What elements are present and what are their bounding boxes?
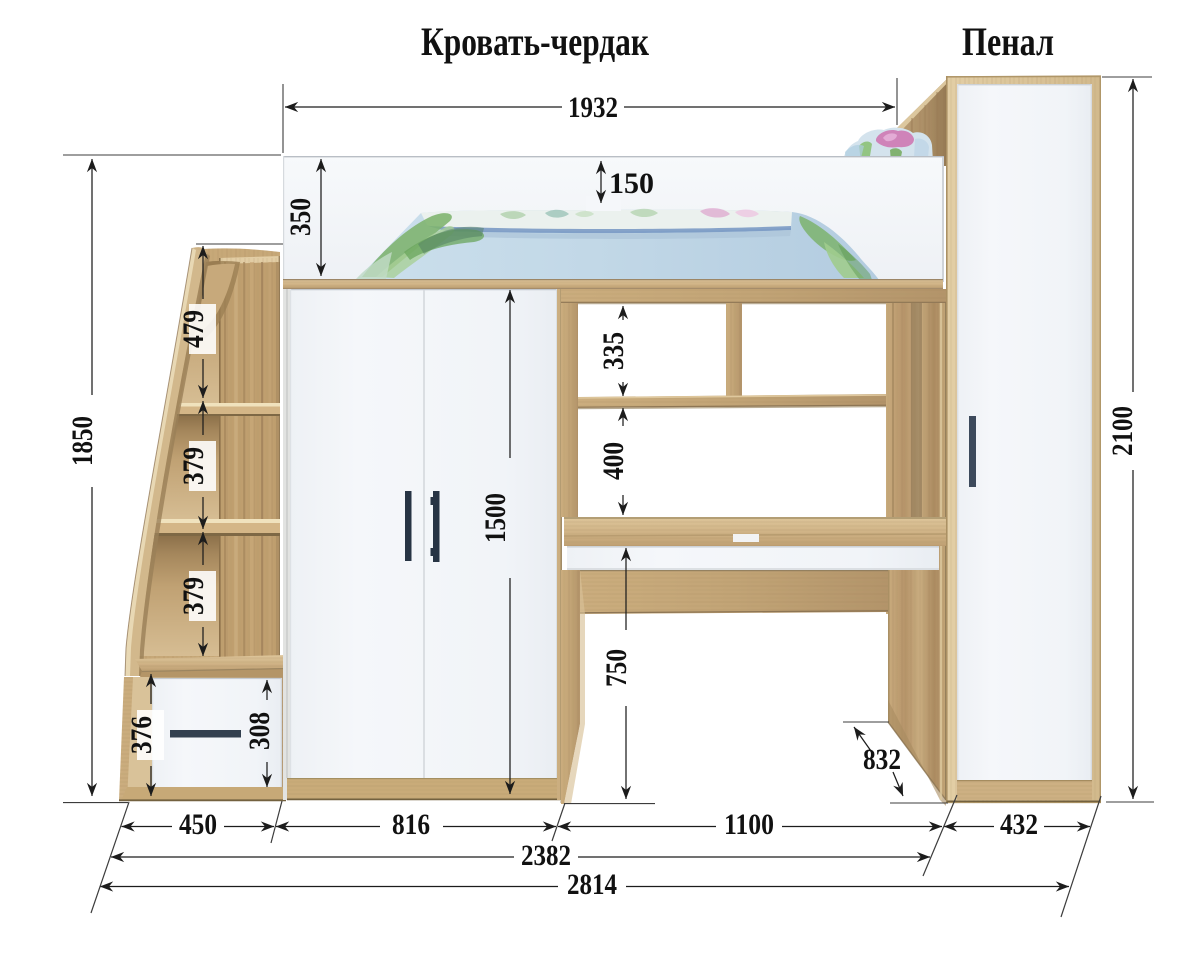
- svg-text:832: 832: [863, 743, 901, 776]
- svg-text:Кровать-чердак: Кровать-чердак: [421, 19, 649, 64]
- svg-text:308: 308: [243, 712, 276, 750]
- svg-text:350: 350: [284, 198, 317, 236]
- svg-text:1100: 1100: [724, 808, 774, 841]
- svg-text:379: 379: [177, 447, 210, 485]
- svg-text:1850: 1850: [66, 416, 99, 466]
- svg-text:379: 379: [177, 577, 210, 615]
- svg-text:1500: 1500: [479, 493, 512, 543]
- svg-text:1932: 1932: [568, 91, 618, 124]
- svg-text:376: 376: [125, 716, 158, 754]
- svg-text:2814: 2814: [567, 868, 617, 901]
- svg-text:335: 335: [597, 332, 630, 370]
- svg-text:2382: 2382: [521, 839, 571, 872]
- svg-text:2100: 2100: [1106, 406, 1139, 456]
- svg-text:432: 432: [1000, 808, 1038, 841]
- svg-text:479: 479: [177, 310, 210, 348]
- svg-text:150: 150: [609, 167, 654, 200]
- svg-text:Пенал: Пенал: [962, 19, 1054, 64]
- svg-text:816: 816: [392, 808, 430, 841]
- svg-text:750: 750: [600, 649, 633, 687]
- svg-text:400: 400: [597, 442, 630, 480]
- svg-text:450: 450: [179, 808, 217, 841]
